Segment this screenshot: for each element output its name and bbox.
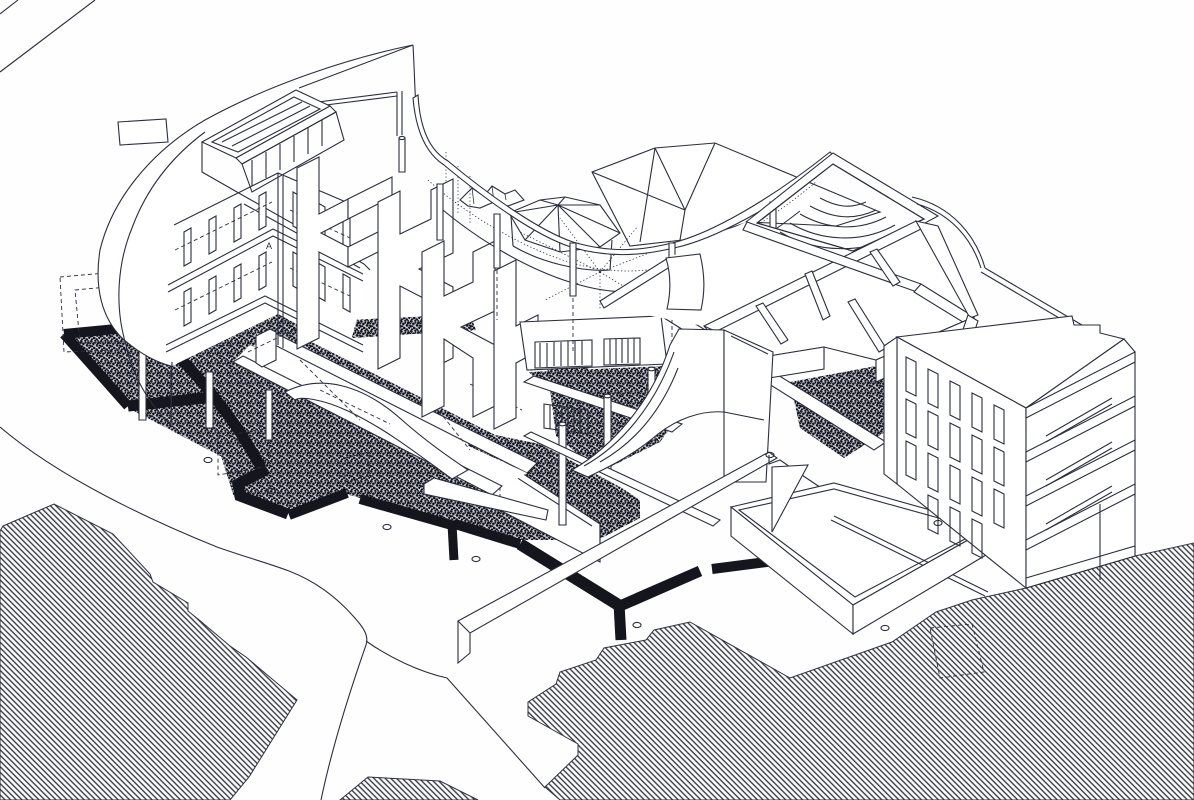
svg-text:A: A <box>266 241 272 251</box>
